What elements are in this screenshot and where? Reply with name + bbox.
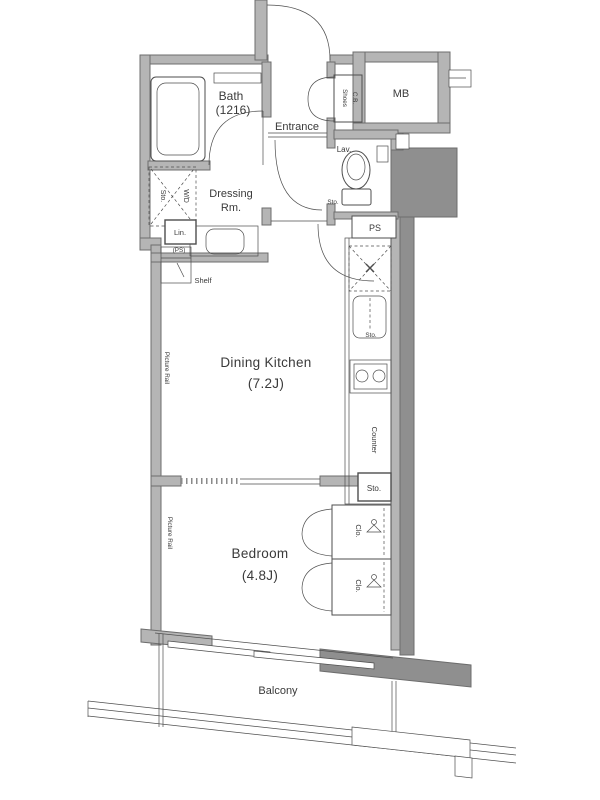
bath-door-arc (209, 111, 263, 165)
toilet-storage-label: Sto. (327, 199, 338, 206)
wall-segment (353, 52, 450, 62)
wall-segment (140, 55, 150, 247)
hanger-icon (367, 575, 381, 588)
bedroom-room: Bedroom (4.8J) Picture Rail Clo. Clo. (166, 505, 391, 615)
stove-inner (354, 364, 387, 389)
duct-stub (449, 70, 471, 87)
floor-plan-drawing: MB Entrance Shoes C.B. Bath (1216) Lav. … (0, 0, 600, 800)
wall-segment (438, 52, 450, 133)
void-strip (400, 217, 414, 655)
wall-segment (255, 0, 267, 60)
closet-label: Clo. (354, 524, 363, 537)
wall-segment (151, 253, 268, 262)
wall-segment (334, 130, 398, 139)
shoes-cabinet-label: C.B. (351, 92, 358, 104)
washer-dryer-label: W/D (182, 189, 189, 203)
meter-box-label: MB (393, 88, 410, 100)
wall-segment (151, 476, 181, 486)
bedroom-size-label: (4.8J) (242, 568, 278, 583)
vent-box (396, 134, 409, 149)
lav-door-arc (275, 140, 322, 210)
dressing-room-label2: Rm. (221, 202, 241, 214)
meter-box: MB (393, 70, 471, 149)
linen-ps-label: (PS) (173, 247, 186, 254)
bathtub-inner (157, 83, 199, 155)
dressing-room: Sto. W/D Dressing Rm. Lin. (PS) Shelf (149, 167, 258, 285)
bath-room: Bath (1216) (151, 73, 263, 165)
balcony-divider (352, 727, 470, 758)
floor-plan: MB Entrance Shoes C.B. Bath (1216) Lav. … (0, 0, 600, 800)
bath-label: Bath (219, 89, 244, 103)
wall-segment (151, 245, 161, 645)
shoes-door-arc (308, 77, 334, 99)
closet-door-arc (302, 588, 332, 611)
dressing-room-label: Dressing (209, 188, 252, 200)
stove-burner (373, 370, 385, 382)
shelf-label: Shelf (194, 276, 212, 285)
wall-segment (140, 55, 268, 64)
balcony-divider-end (455, 756, 472, 778)
void-bottom-band (320, 649, 471, 687)
washer-storage-label: Sto. (159, 190, 166, 203)
kitchen-storage-label: Sto. (367, 484, 381, 493)
counter-label: Counter (370, 427, 379, 454)
linen-label: Lin. (174, 228, 186, 237)
lavatory-label: Lav. (337, 145, 352, 154)
bathtub (151, 77, 205, 161)
balcony-structure: Balcony (88, 633, 516, 778)
entrance-door-arc (267, 5, 330, 60)
vanity-counter (190, 226, 258, 256)
toilet-bowl (347, 154, 365, 180)
pipe-space-label: PS (369, 223, 381, 233)
sink-storage-label: Sto. (365, 332, 376, 339)
bath-window (214, 73, 261, 83)
toilet-tank (342, 189, 371, 205)
lav-shelf (377, 146, 388, 162)
wall-segment (320, 476, 360, 486)
closet-door-arc (302, 534, 332, 556)
closet-door-arc (302, 509, 332, 534)
wall-segment (262, 62, 271, 117)
void-block (391, 148, 457, 217)
dining-kitchen-label: Dining Kitchen (220, 355, 311, 370)
picture-rail-label: Picture Rail (163, 352, 170, 384)
bedroom-label: Bedroom (232, 546, 289, 561)
closet-outline (332, 505, 391, 615)
dining-kitchen-size-label: (7.2J) (248, 376, 284, 391)
closet-label: Clo. (354, 579, 363, 592)
entrance-label: Entrance (275, 121, 319, 133)
stove-burner (356, 370, 368, 382)
vanity-basin (206, 229, 244, 254)
picture-rail-label: Picture Rail (166, 517, 173, 549)
shoes-cabinet-label: Shoes (341, 89, 348, 107)
toilet-icon (342, 151, 370, 189)
balcony-label: Balcony (258, 685, 298, 697)
dining-kitchen: Sto. Counter Sto. Picture Rail Dining Ki… (163, 224, 391, 504)
wall-segment (148, 161, 210, 170)
shelf-leader (177, 263, 184, 277)
wall-segment (391, 217, 400, 650)
wall-segment (262, 208, 271, 225)
bath-size-label: (1216) (216, 103, 251, 117)
hanger-icon (367, 520, 381, 533)
closet-door-arc (302, 563, 332, 588)
